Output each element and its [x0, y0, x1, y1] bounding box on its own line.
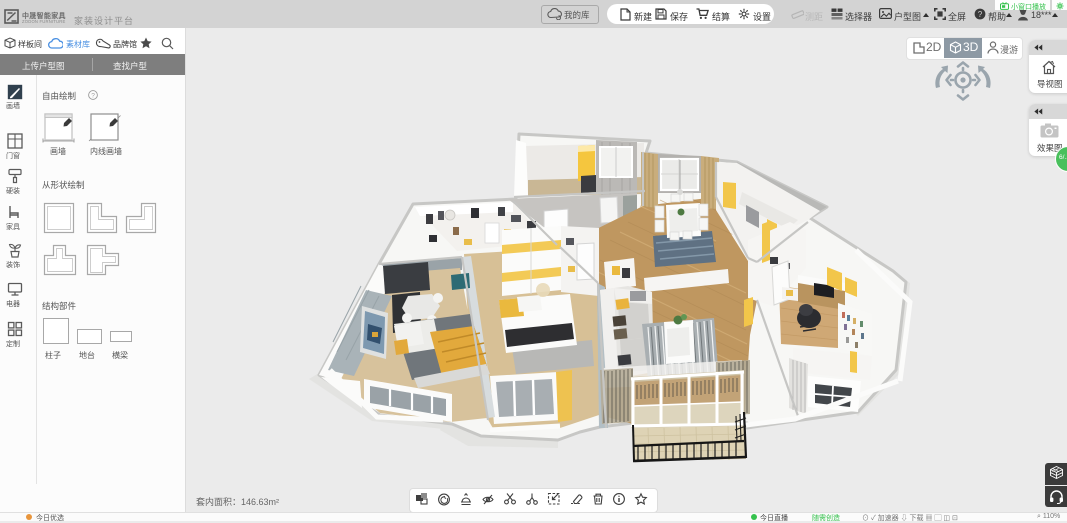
- svg-text:?: ?: [978, 10, 983, 19]
- svg-text:?: ?: [91, 92, 95, 99]
